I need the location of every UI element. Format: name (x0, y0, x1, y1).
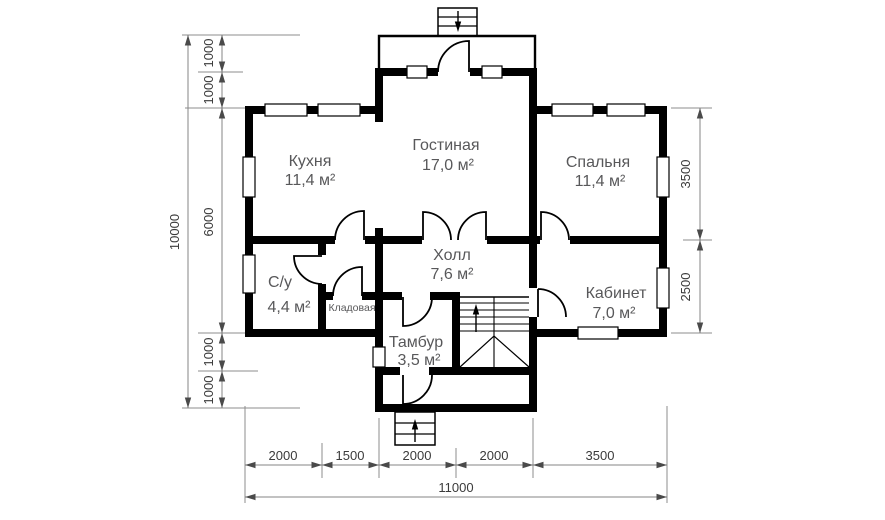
label-hall: Холл (433, 247, 471, 264)
dim-left-6000: 6000 (201, 208, 216, 237)
window-kitchen-north-2 (318, 104, 360, 116)
label-tambour-area: 3,5 м² (397, 352, 441, 369)
window-wc-west (243, 255, 255, 293)
dim-left-outer: 10000 (167, 35, 191, 408)
top-entry-steps (438, 8, 477, 36)
label-hall-area: 7,6 м² (430, 266, 474, 283)
dim-bottom-total: 11000 (245, 480, 667, 500)
label-office-area: 7,0 м² (592, 305, 636, 322)
floor-plan: Кухня 11,4 м² Гостиная 17,0 м² Спальня 1… (0, 0, 885, 520)
window-office-east (657, 268, 669, 308)
door-exit-porch (403, 375, 432, 404)
window-office-south (578, 327, 618, 339)
door-bedroom (541, 212, 569, 240)
dim-11000: 11000 (438, 480, 473, 495)
steps-up-arrow-icon (412, 419, 418, 430)
window-living-north-2 (482, 66, 502, 78)
dim-left-1000b: 1000 (201, 76, 216, 105)
label-wc: С/у (268, 274, 292, 291)
door-storage (333, 267, 362, 296)
stairs-up-arrow-icon (473, 304, 479, 315)
dim-bottom-2000c: 2000 (480, 448, 509, 463)
door-living-double-left (423, 212, 451, 240)
floor-plan-svg: Кухня 11,4 м² Гостиная 17,0 м² Спальня 1… (0, 0, 885, 520)
dim-bottom-1500: 1500 (336, 448, 365, 463)
label-bedroom-area: 11,4 м² (575, 173, 626, 190)
label-living-area: 17,0 м² (422, 157, 475, 174)
window-living-north-1 (407, 66, 427, 78)
door-kitchen (335, 211, 364, 240)
label-storage: Кладовая (328, 302, 375, 314)
door-porch-entry (438, 41, 469, 72)
label-kitchen-area: 11,4 м² (285, 172, 336, 189)
label-tambour: Тамбур (389, 334, 443, 351)
window-bedroom-north-2 (607, 104, 645, 116)
staircase (460, 297, 529, 367)
window-kitchen-north-1 (265, 104, 307, 116)
dim-right-chain: 3500 2500 (678, 108, 703, 333)
door-office (538, 289, 566, 317)
steps-down-arrow-icon (455, 22, 461, 33)
dim-left-1000c: 1000 (201, 338, 216, 367)
label-bedroom: Спальня (566, 154, 630, 171)
door-tambour (403, 297, 432, 326)
dim-bottom-2000b: 2000 (403, 448, 432, 463)
label-kitchen: Кухня (289, 153, 332, 170)
label-wc-area: 4,4 м² (267, 299, 311, 316)
label-office: Кабинет (586, 285, 648, 302)
door-living-double-right (458, 212, 486, 240)
dim-right-3500: 3500 (678, 160, 693, 189)
window-kitchen-west (243, 157, 255, 197)
dim-bottom-3500: 3500 (586, 448, 615, 463)
top-porch (379, 8, 535, 72)
window-bedroom-east (657, 157, 669, 197)
dim-10000: 10000 (167, 214, 182, 250)
dim-left-1000d: 1000 (201, 376, 216, 405)
window-tambour-west (373, 347, 385, 367)
window-bedroom-north-1 (552, 104, 593, 116)
dim-left-chain: 1000 1000 6000 1000 1000 (201, 35, 225, 408)
dim-bottom-2000a: 2000 (269, 448, 298, 463)
bottom-entry-steps (395, 412, 435, 445)
dim-right-2500: 2500 (678, 273, 693, 302)
dim-left-1000a: 1000 (201, 39, 216, 68)
walls (245, 68, 667, 412)
label-living: Гостиная (412, 137, 479, 154)
door-wc (294, 256, 322, 284)
